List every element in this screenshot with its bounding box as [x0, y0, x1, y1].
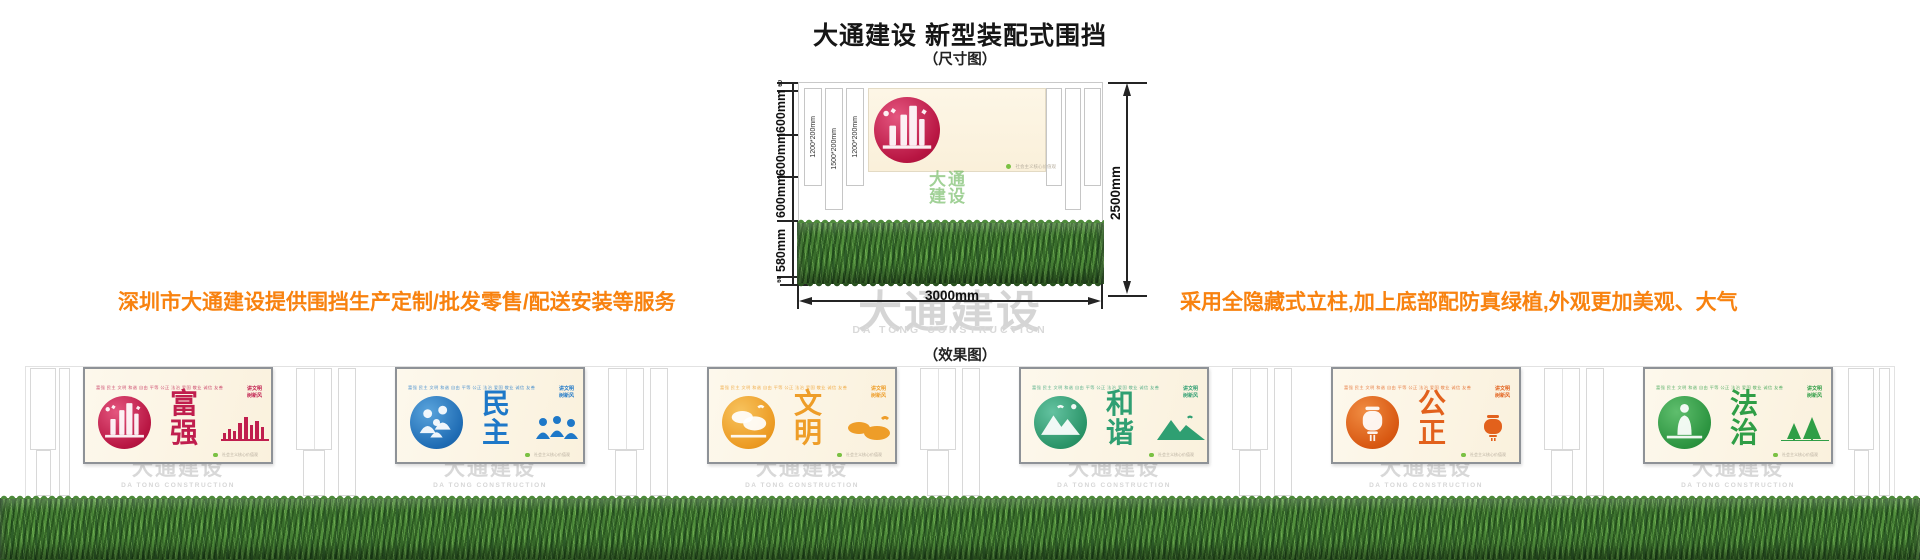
clouds-icon [722, 396, 775, 449]
value-panel-gongzheng: 富强 民主 文明 和谐 自由 平等 公正 法治 爱国 敬业 诚信 友善 公 正 … [1331, 367, 1521, 464]
post-size-label: 1200*200mm [852, 116, 859, 158]
badge-note: 社会主义核心价值观 [846, 452, 882, 457]
fence-post [1232, 368, 1268, 450]
mountain-icon [1157, 414, 1205, 441]
word-char-2: 明 [789, 418, 827, 447]
panel-badge: 社会主义核心价值观 [213, 446, 258, 464]
dim-arrow-down [1123, 281, 1131, 294]
brand-watermark-sub: DA TONG CONSTRUCTION [850, 324, 1050, 336]
slogan-line-1: 讲文明 [871, 386, 886, 393]
fence-post [920, 368, 956, 450]
word-char-1: 民 [477, 389, 515, 418]
values-micro-row: 富强 民主 文明 和谐 自由 平等 公正 法治 爱国 敬业 诚信 友善 [1032, 385, 1162, 391]
dim-600-2: 600mm [774, 136, 788, 176]
green-dot-icon [1461, 453, 1466, 458]
post-size-label: 1500*200mm [831, 128, 838, 170]
slogan-line-1: 讲文明 [1495, 386, 1510, 393]
papercut-art-circle [410, 396, 463, 449]
lantern-icon [1469, 414, 1517, 441]
panel-word: 和 谐 [1101, 389, 1139, 447]
city-bars-icon [221, 414, 269, 441]
badge-note: 社会主义核心价值观 [1782, 452, 1818, 457]
value-panel-minzhu: 富强 民主 文明 和谐 自由 平等 公正 法治 爱国 敬业 诚信 友善 民 主 … [395, 367, 585, 464]
panel-word: 文 明 [789, 389, 827, 447]
fence-post-narrow [962, 368, 980, 496]
slogan-line-1: 讲文明 [247, 386, 262, 393]
panel-word: 民 主 [477, 389, 515, 447]
papercut-art-circle [722, 396, 775, 449]
word-char-2: 治 [1725, 418, 1763, 447]
green-logo-watermark: 大通 建设 [929, 171, 967, 205]
word-char-2: 谐 [1101, 418, 1139, 447]
fence-post-narrow [59, 368, 70, 496]
logo-line-1: 大通 [929, 171, 967, 188]
slogan-line-2: 树新风 [247, 393, 262, 400]
word-char-1: 文 [789, 389, 827, 418]
civility-slogan: 讲文明 树新风 [559, 386, 574, 399]
watermark-sub: DA TONG CONSTRUCTION [707, 482, 897, 489]
hidden-post-right-2 [1065, 88, 1081, 210]
logo-line-2: 建设 [929, 188, 967, 205]
word-char-2: 强 [165, 418, 203, 447]
city-skyline-icon [98, 396, 151, 449]
fence-post-narrow [338, 368, 356, 496]
clouds-icon [845, 414, 893, 441]
civility-slogan: 讲文明 树新风 [871, 386, 886, 399]
height-dim-line [1126, 93, 1128, 285]
fence-post-foot [615, 450, 637, 496]
watermark-sub: DA TONG CONSTRUCTION [395, 482, 585, 489]
word-char-2: 正 [1413, 418, 1451, 447]
fence-post [1848, 368, 1874, 450]
fence-post-foot [1551, 450, 1573, 496]
fence-post-foot [36, 450, 51, 496]
people-icon [410, 396, 463, 449]
slogan-line-2: 树新风 [871, 393, 886, 400]
fence-post [1544, 368, 1580, 450]
post-size-label: 1200*200mm [810, 116, 817, 158]
slogan-line-1: 讲文明 [559, 386, 574, 393]
watermark-sub: DA TONG CONSTRUCTION [1331, 482, 1521, 489]
papercut-art-circle [1346, 396, 1399, 449]
mountain-icon [1034, 396, 1087, 449]
green-dot-icon [213, 453, 218, 458]
green-dot-icon [525, 453, 530, 458]
badge-note: 社会主义核心价值观 [534, 452, 570, 457]
civility-slogan: 讲文明 树新风 [1495, 386, 1510, 399]
slogan-line-2: 树新风 [1495, 393, 1510, 400]
fence-post [296, 368, 332, 450]
slogan-line-2: 树新风 [559, 393, 574, 400]
slogan-line-1: 讲文明 [1807, 386, 1822, 393]
badge-note: 社会主义核心价值观 [222, 452, 258, 457]
values-micro-row: 富强 民主 文明 和谐 自由 平等 公正 法治 爱国 敬业 诚信 友善 [1344, 385, 1474, 391]
word-char-1: 富 [165, 389, 203, 418]
civility-slogan: 讲文明 树新风 [1807, 386, 1822, 399]
dim-arrow-up [1123, 83, 1131, 96]
badge-note: 社会主义核心价值观 [1015, 164, 1056, 169]
value-panel-hexie: 富强 民主 文明 和谐 自由 平等 公正 法治 爱国 敬业 诚信 友善 和 谐 … [1019, 367, 1209, 464]
dim-arrow-left [799, 297, 812, 305]
panel-badge: 社会主义核心价值观 [1006, 158, 1056, 176]
slogan-line-1: 讲文明 [1183, 386, 1198, 393]
dim-arrow-right [1088, 297, 1101, 305]
poster: 大通建设 新型装配式围挡 （尺寸图） 深圳市大通建设提供围挡生产定制/批发零售/… [0, 0, 1920, 560]
word-char-1: 公 [1413, 389, 1451, 418]
effect-diagram-caption: （效果图） [0, 344, 1920, 365]
civility-slogan: 讲文明 树新风 [1183, 386, 1198, 399]
values-micro-row: 富强 民主 文明 和谐 自由 平等 公正 法治 爱国 敬业 诚信 友善 [720, 385, 850, 391]
badge-note: 社会主义核心价值观 [1158, 452, 1194, 457]
values-micro-row: 富强 民主 文明 和谐 自由 平等 公正 法治 爱国 敬业 诚信 友善 [408, 385, 538, 391]
fence-post-foot [1854, 450, 1869, 496]
watermark-sub: DA TONG CONSTRUCTION [1643, 482, 1833, 489]
panel-badge: 社会主义核心价值观 [525, 446, 570, 464]
service-note: 深圳市大通建设提供围挡生产定制/批发零售/配送安装等服务 [118, 286, 676, 316]
slogan-line-2: 树新风 [1807, 393, 1822, 400]
badge-note: 社会主义核心价值观 [1470, 452, 1506, 457]
feature-note: 采用全隐藏式立柱,加上底部配防真绿植,外观更加美观、大气 [1180, 286, 1738, 316]
hidden-post-right-3 [1084, 88, 1101, 186]
hidden-post-1500: 1500*200mm [825, 88, 843, 210]
panel-word: 富 强 [165, 389, 203, 447]
fence-post-narrow [1879, 368, 1890, 496]
fence-post-foot [303, 450, 325, 496]
fence-post-narrow [650, 368, 668, 496]
total-width-label: 3000mm [900, 288, 1004, 303]
papercut-art-circle [98, 396, 151, 449]
papercut-city-art [874, 97, 940, 163]
effect-grass-hedge [0, 498, 1920, 560]
fence-post [30, 368, 56, 450]
green-dot-icon [837, 453, 842, 458]
left-dim-line [792, 82, 794, 284]
panel-badge: 社会主义核心价值观 [1461, 446, 1506, 464]
hidden-post-1200-right: 1200*200mm [846, 88, 864, 186]
fence-post-narrow [1586, 368, 1604, 496]
dim-60-top: 60 [778, 80, 784, 87]
panel-badge: 社会主义核心价值观 [1773, 446, 1818, 464]
dim-580: 580mm [774, 228, 788, 272]
dim-tick [1108, 295, 1147, 297]
people-icon [533, 414, 581, 441]
panel-word: 公 正 [1413, 389, 1451, 447]
word-char-1: 法 [1725, 389, 1763, 418]
city-skyline-icon [874, 97, 940, 163]
word-char-1: 和 [1101, 389, 1139, 418]
dim-600-1: 600mm [774, 93, 788, 133]
civility-slogan: 讲文明 树新风 [247, 386, 262, 399]
value-panel-wenming: 富强 民主 文明 和谐 自由 平等 公正 法治 爱国 敬业 诚信 友善 文 明 … [707, 367, 897, 464]
papercut-art-circle [1034, 396, 1087, 449]
hidden-post-1200-left: 1200*200mm [804, 88, 822, 186]
papercut-art-circle [1658, 396, 1711, 449]
size-diagram-caption: （尺寸图） [0, 48, 1920, 69]
green-dot-icon [1006, 164, 1011, 169]
fence-post-foot [1239, 450, 1261, 496]
slogan-line-2: 树新风 [1183, 393, 1198, 400]
fence-post [608, 368, 644, 450]
watermark-sub: DA TONG CONSTRUCTION [1019, 482, 1209, 489]
values-micro-row: 富强 民主 文明 和谐 自由 平等 公正 法治 爱国 敬业 诚信 友善 [96, 385, 226, 391]
word-char-2: 主 [477, 418, 515, 447]
dim-600-3: 600mm [774, 178, 788, 218]
green-dot-icon [1149, 453, 1154, 458]
trees-icon [1781, 414, 1829, 441]
fence-post-foot [927, 450, 949, 496]
green-dot-icon [1773, 453, 1778, 458]
fence-post-narrow [1274, 368, 1292, 496]
panel-word: 法 治 [1725, 389, 1763, 447]
dim-60-bottom: 60 [777, 276, 783, 283]
values-micro-row: 富强 民主 文明 和谐 自由 平等 公正 法治 爱国 敬业 诚信 友善 [1656, 385, 1786, 391]
value-panel-fazhi: 富强 民主 文明 和谐 自由 平等 公正 法治 爱国 敬业 诚信 友善 法 治 … [1643, 367, 1833, 464]
value-panel-fuqiang: 富强 民主 文明 和谐 自由 平等 公正 法治 爱国 敬业 诚信 友善 富 强 … [83, 367, 273, 464]
watermark-sub: DA TONG CONSTRUCTION [83, 482, 273, 489]
panel-badge: 社会主义核心价值观 [1149, 446, 1194, 464]
page-title: 大通建设 新型装配式围挡 [0, 16, 1920, 52]
diagram-grass-hedge [797, 222, 1104, 284]
lantern-icon [1346, 396, 1399, 449]
panel-badge: 社会主义核心价值观 [837, 446, 882, 464]
total-height-label: 2500mm [1108, 160, 1123, 220]
figure-icon [1658, 396, 1711, 449]
